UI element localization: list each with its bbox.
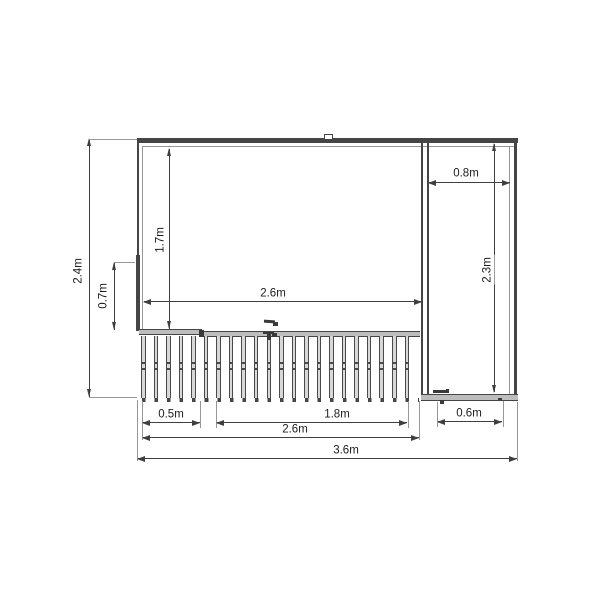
roof-underline bbox=[142, 146, 516, 147]
side-bay-foot bbox=[440, 400, 444, 404]
deck-rail-left bbox=[139, 329, 202, 335]
dim-opening-height-label: 1.7m bbox=[155, 225, 168, 255]
deck-slat bbox=[367, 336, 372, 398]
dim-opening-width-label: 2.6m bbox=[258, 288, 288, 301]
deck-slat bbox=[166, 336, 171, 398]
dim-left-panel-arrow-bottom bbox=[112, 322, 116, 330]
dim-overall-width-arrow-right bbox=[509, 456, 517, 462]
deck-slat bbox=[154, 336, 159, 398]
deck-slat bbox=[379, 336, 384, 398]
deck-slat bbox=[304, 336, 309, 398]
ext-gate-right bbox=[408, 401, 409, 428]
right-wall bbox=[514, 138, 517, 400]
gate-handle-lower-end bbox=[272, 333, 277, 337]
dim-side-bay-height-arrow-top bbox=[492, 143, 496, 151]
dim-door-arrow-right bbox=[494, 419, 502, 425]
dim-door-label: 0.6m bbox=[454, 408, 484, 421]
ext-overall-right bbox=[517, 402, 518, 461]
dim-opening-width-arrow-left bbox=[143, 299, 151, 305]
dim-door-arrow-left bbox=[437, 419, 445, 425]
dim-opening-height-arrow-top bbox=[167, 148, 171, 156]
dim-deck-left-arrow-left bbox=[142, 420, 150, 426]
ext-overall-left bbox=[137, 400, 138, 461]
ext-door-right bbox=[503, 401, 504, 427]
dim-door-line bbox=[438, 421, 502, 422]
dim-side-bay-width-label: 0.8m bbox=[451, 168, 481, 181]
dim-overall-width-line bbox=[138, 458, 517, 459]
dim-deck-total-arrow-left bbox=[142, 435, 150, 441]
dim-left-panel-line bbox=[114, 263, 115, 330]
dim-gate-line bbox=[217, 422, 407, 423]
dim-deck-total-label: 2.6m bbox=[280, 424, 310, 437]
gate-handle-lower-grip bbox=[267, 334, 271, 340]
deck-slat bbox=[392, 336, 397, 398]
gate-handle-upper-grip bbox=[273, 322, 278, 326]
deck-slat bbox=[405, 336, 410, 398]
dim-gate-arrow-right bbox=[399, 420, 407, 426]
deck-slat bbox=[204, 336, 209, 398]
dim-side-bay-width-arrow-left bbox=[428, 180, 436, 186]
dim-gate-arrow-left bbox=[216, 420, 224, 426]
deck-slat bbox=[229, 336, 234, 398]
dim-deck-total-line bbox=[143, 437, 419, 438]
dim-deck-left-label: 0.5m bbox=[156, 409, 186, 422]
roof-joint-tab bbox=[324, 134, 333, 139]
deck-slat bbox=[342, 336, 347, 398]
ext-deck-right bbox=[419, 401, 420, 440]
dim-overall-width-arrow-left bbox=[137, 456, 145, 462]
dim-side-bay-width-line bbox=[429, 182, 510, 183]
dim-left-panel-label: 0.7m bbox=[98, 281, 111, 311]
ext-deck-left-section bbox=[200, 401, 201, 428]
deck-slats bbox=[141, 336, 418, 398]
roof-beam bbox=[137, 138, 518, 143]
dim-opening-height-arrow-bottom bbox=[167, 321, 171, 329]
deck-slat bbox=[354, 336, 359, 398]
dim-overall-height-ext-bottom bbox=[89, 397, 137, 398]
dim-left-panel-arrow-top bbox=[112, 262, 116, 270]
deck-slat bbox=[241, 336, 246, 398]
deck-slat bbox=[141, 336, 146, 398]
deck-slat bbox=[254, 336, 259, 398]
dim-opening-width-arrow-right bbox=[414, 299, 422, 305]
elevation-drawing: 2.4m 0.7m 1.7m 2.3m 2.6m 0.8m 0.5m 1.8m … bbox=[0, 0, 600, 600]
deck-slat bbox=[179, 336, 184, 398]
side-bay-step-end bbox=[446, 389, 449, 394]
dim-overall-height-ext-top bbox=[89, 139, 137, 140]
deck-slat bbox=[317, 336, 322, 398]
deck-slat bbox=[191, 336, 196, 398]
dim-overall-width-label: 3.6m bbox=[331, 445, 361, 458]
deck-slat bbox=[329, 336, 334, 398]
left-wall-lower-panel bbox=[136, 255, 140, 331]
deck-slat bbox=[292, 336, 297, 398]
dim-gate-label: 1.8m bbox=[322, 409, 352, 422]
deck-slat bbox=[267, 336, 272, 398]
side-bay-base bbox=[421, 394, 518, 401]
dim-overall-height-line bbox=[89, 139, 90, 397]
dim-deck-left-arrow-right bbox=[192, 420, 200, 426]
dim-overall-height-label: 2.4m bbox=[73, 256, 86, 286]
dim-side-bay-height-label: 2.3m bbox=[482, 255, 495, 285]
dim-side-bay-height-arrow-bottom bbox=[492, 385, 496, 393]
dim-deck-total-arrow-right bbox=[411, 435, 419, 441]
dim-side-bay-width-arrow-right bbox=[502, 180, 510, 186]
side-bay-mark bbox=[498, 398, 502, 400]
dim-opening-height-line bbox=[169, 149, 170, 329]
side-bay-divider-outer bbox=[421, 143, 423, 395]
dim-opening-width-line bbox=[144, 301, 422, 302]
deck-slat bbox=[279, 336, 284, 398]
deck-slat bbox=[216, 336, 221, 398]
dim-left-panel-ext-top bbox=[114, 262, 135, 263]
deck-slat-feet bbox=[142, 398, 419, 402]
